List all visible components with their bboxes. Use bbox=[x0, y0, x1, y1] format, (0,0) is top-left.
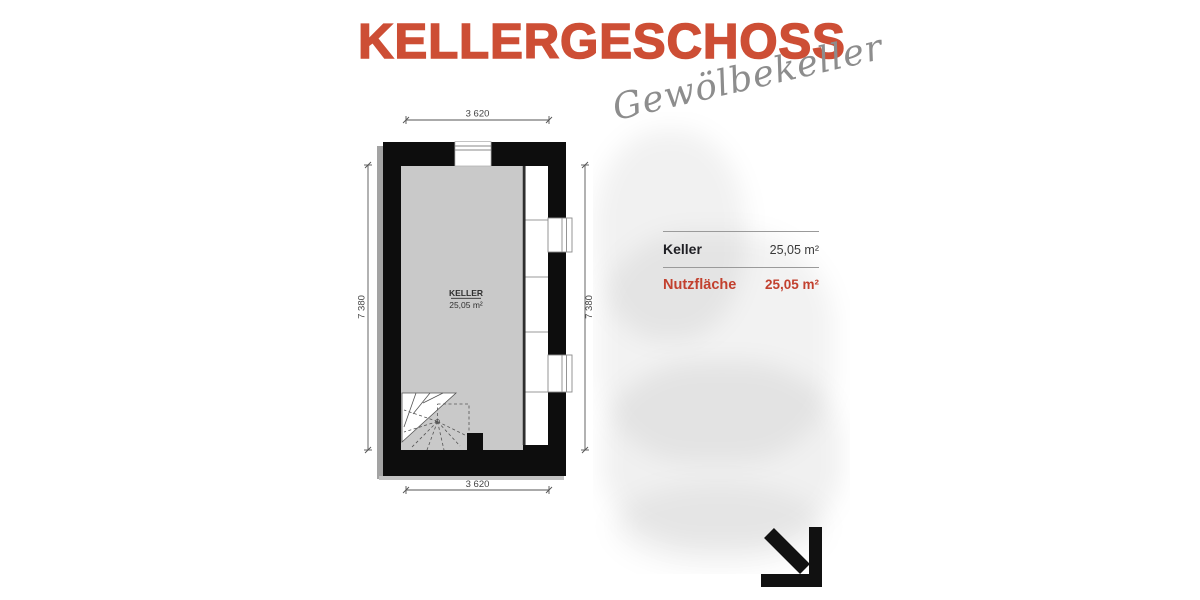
wash-blob bbox=[603, 362, 841, 547]
window-right-upper bbox=[548, 218, 572, 252]
row-value: 25,05 m² bbox=[765, 277, 819, 292]
window-top bbox=[455, 142, 491, 167]
dimension-left-label: 7 380 bbox=[357, 295, 368, 319]
room-area: 25,05 m² bbox=[449, 300, 483, 310]
dimension-top-label: 3 620 bbox=[466, 109, 490, 120]
arrow-down-right-icon bbox=[758, 523, 826, 591]
plan-shadow bbox=[377, 146, 384, 479]
dimension-bottom-label: 3 620 bbox=[466, 479, 490, 490]
watercolor-wash bbox=[593, 112, 850, 574]
floorplan-page: KELLERGESCHOSS Gewölbekeller bbox=[0, 0, 1200, 600]
wall-pillar bbox=[467, 433, 483, 450]
row-label: Nutzfläche bbox=[663, 277, 736, 293]
dimension-right-label: 7 380 bbox=[584, 295, 595, 319]
area-summary-table: Keller 25,05 m² Nutzfläche 25,05 m² bbox=[663, 231, 819, 303]
floorplan-drawing: KELLER 25,05 m² 3 620 3 620 bbox=[350, 95, 600, 505]
room-label: KELLER bbox=[449, 288, 483, 298]
table-row-total: Nutzfläche 25,05 m² bbox=[663, 267, 819, 303]
row-value: 25,05 m² bbox=[770, 243, 819, 257]
window-right-lower bbox=[548, 355, 572, 392]
wall-niche-strip bbox=[526, 166, 549, 445]
row-label: Keller bbox=[663, 241, 702, 257]
table-row: Keller 25,05 m² bbox=[663, 231, 819, 267]
